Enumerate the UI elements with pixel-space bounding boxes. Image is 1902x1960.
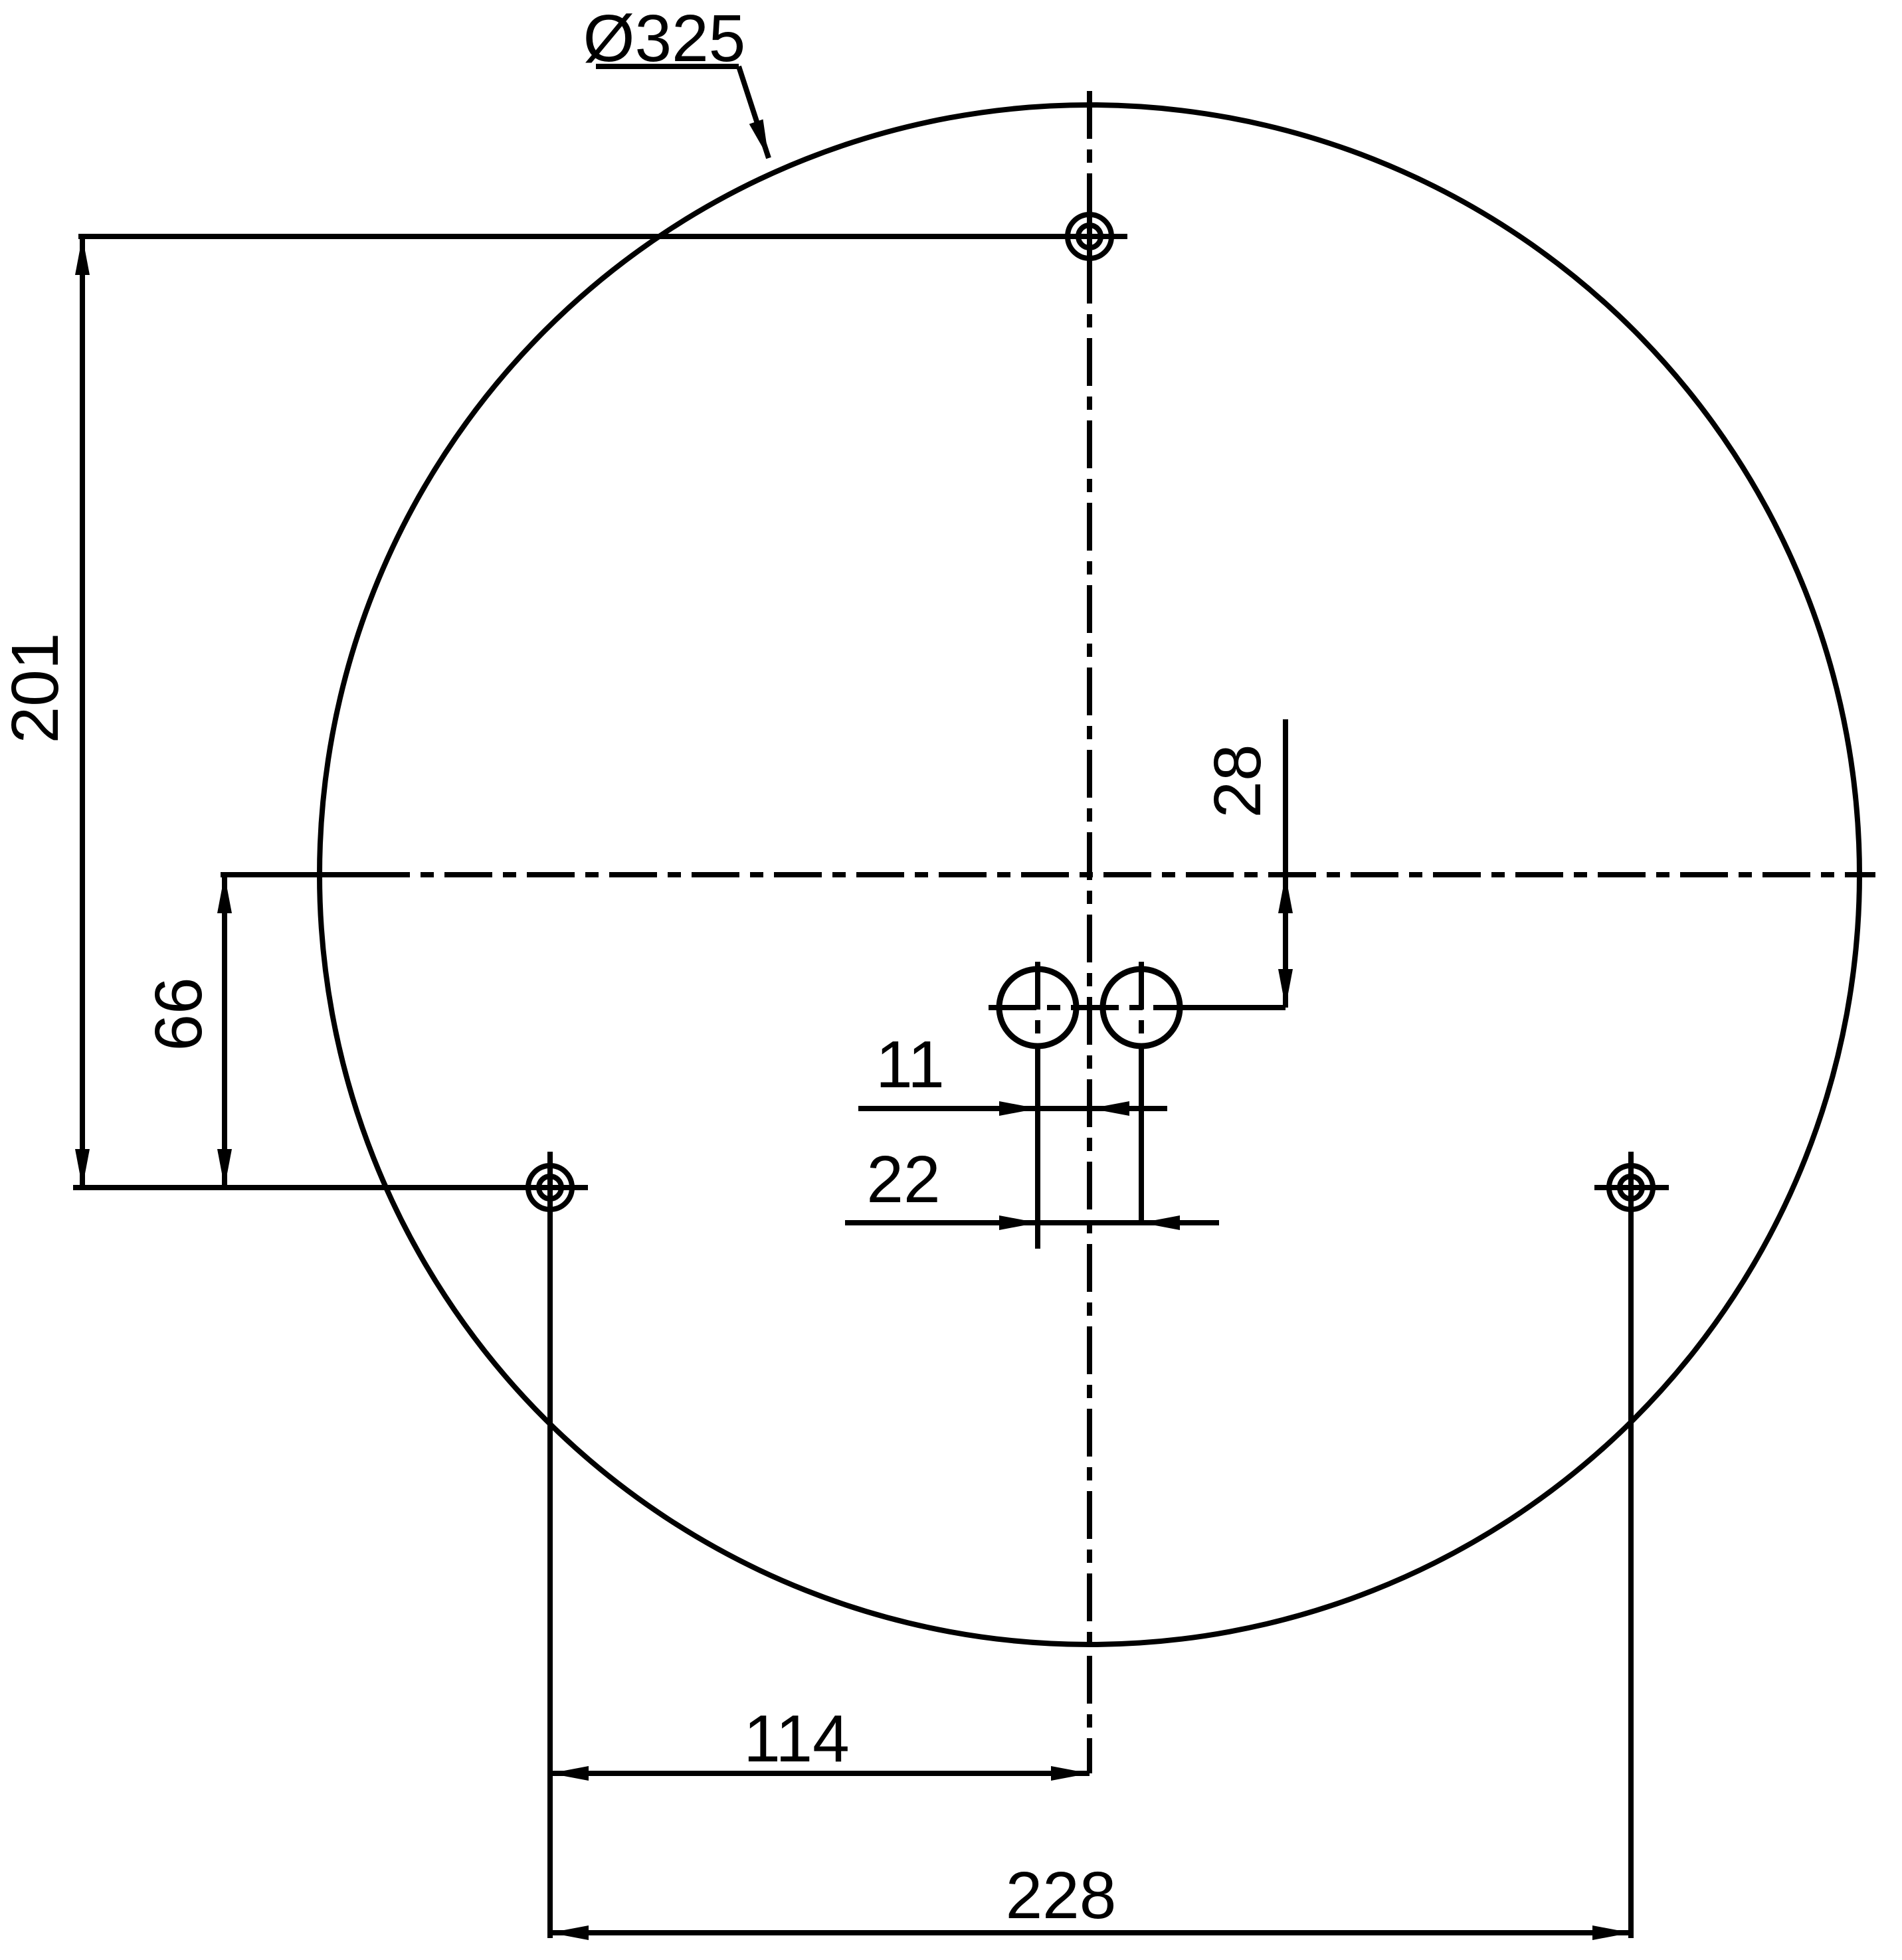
dim-11-label: 11: [876, 1027, 945, 1102]
arrow-leader: [749, 120, 776, 161]
arrow-22-left: [999, 1215, 1038, 1230]
arrow-228-right: [1592, 1925, 1631, 1940]
engineering-drawing-page: Ø325 201 66 28 11 22 114 228: [0, 0, 1902, 1960]
arrow-11-right: [1091, 1101, 1129, 1116]
arrow-28-top: [1278, 875, 1293, 913]
arrow-22-right: [1141, 1215, 1180, 1230]
arrow-201-bottom: [75, 1149, 90, 1188]
arrow-114-right: [1051, 1766, 1090, 1781]
dim-22-label: 22: [866, 1142, 940, 1217]
arrow-66-bottom: [217, 1149, 232, 1188]
dim-66-label: 66: [142, 977, 216, 1051]
arrow-11-left: [999, 1101, 1038, 1116]
drawing-canvas: Ø325 201 66 28 11 22 114 228: [0, 0, 1902, 1960]
arrowheads: [75, 120, 1631, 1940]
dim-28-label: 28: [1200, 744, 1275, 818]
arrow-28-bottom: [1278, 969, 1293, 1008]
dim-114-label: 114: [743, 1702, 849, 1776]
arrow-201-top: [75, 236, 90, 275]
arrow-114-left: [550, 1766, 589, 1781]
diameter-label: Ø325: [583, 1, 746, 76]
arrow-66-top: [217, 875, 232, 913]
dim-228-label: 228: [1006, 1858, 1117, 1933]
dim-201-label: 201: [0, 633, 72, 744]
arrow-228-left: [550, 1925, 589, 1940]
